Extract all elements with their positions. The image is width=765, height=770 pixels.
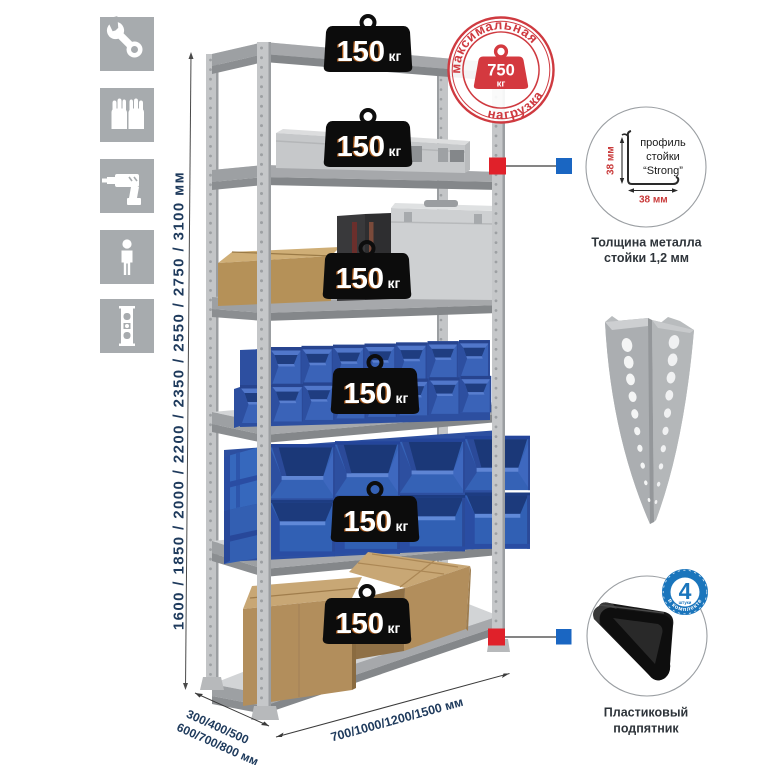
svg-text:кг: кг (389, 48, 402, 64)
svg-text:150: 150 (337, 131, 385, 163)
svg-text:1600 / 1850 / 2000 / 2200 / 23: 1600 / 1850 / 2000 / 2200 / 2350 / 2550 … (171, 171, 188, 630)
svg-text:750: 750 (487, 62, 515, 80)
svg-text:150: 150 (337, 36, 385, 68)
svg-text:подпятник: подпятник (613, 722, 679, 736)
svg-text:стойки 1,2 мм: стойки 1,2 мм (604, 251, 689, 265)
svg-text:штуки: штуки (679, 600, 692, 605)
svg-text:кг: кг (388, 620, 401, 636)
svg-text:кг: кг (396, 390, 409, 406)
svg-text:150: 150 (344, 378, 392, 410)
svg-text:кг: кг (396, 518, 409, 534)
svg-text:150: 150 (336, 608, 384, 640)
svg-text:“Strong”: “Strong” (643, 165, 683, 177)
svg-text:кг: кг (497, 79, 506, 90)
svg-text:Пластиковый: Пластиковый (604, 706, 688, 720)
svg-text:38 мм: 38 мм (606, 146, 617, 175)
svg-text:150: 150 (344, 506, 392, 538)
svg-text:кг: кг (388, 275, 401, 291)
svg-text:Толщина металла: Толщина металла (591, 236, 702, 250)
svg-text:профиль: профиль (640, 137, 686, 149)
svg-text:150: 150 (336, 263, 384, 295)
svg-text:38 мм: 38 мм (639, 195, 668, 206)
svg-text:стойки: стойки (646, 151, 680, 163)
svg-text:кг: кг (389, 143, 402, 159)
